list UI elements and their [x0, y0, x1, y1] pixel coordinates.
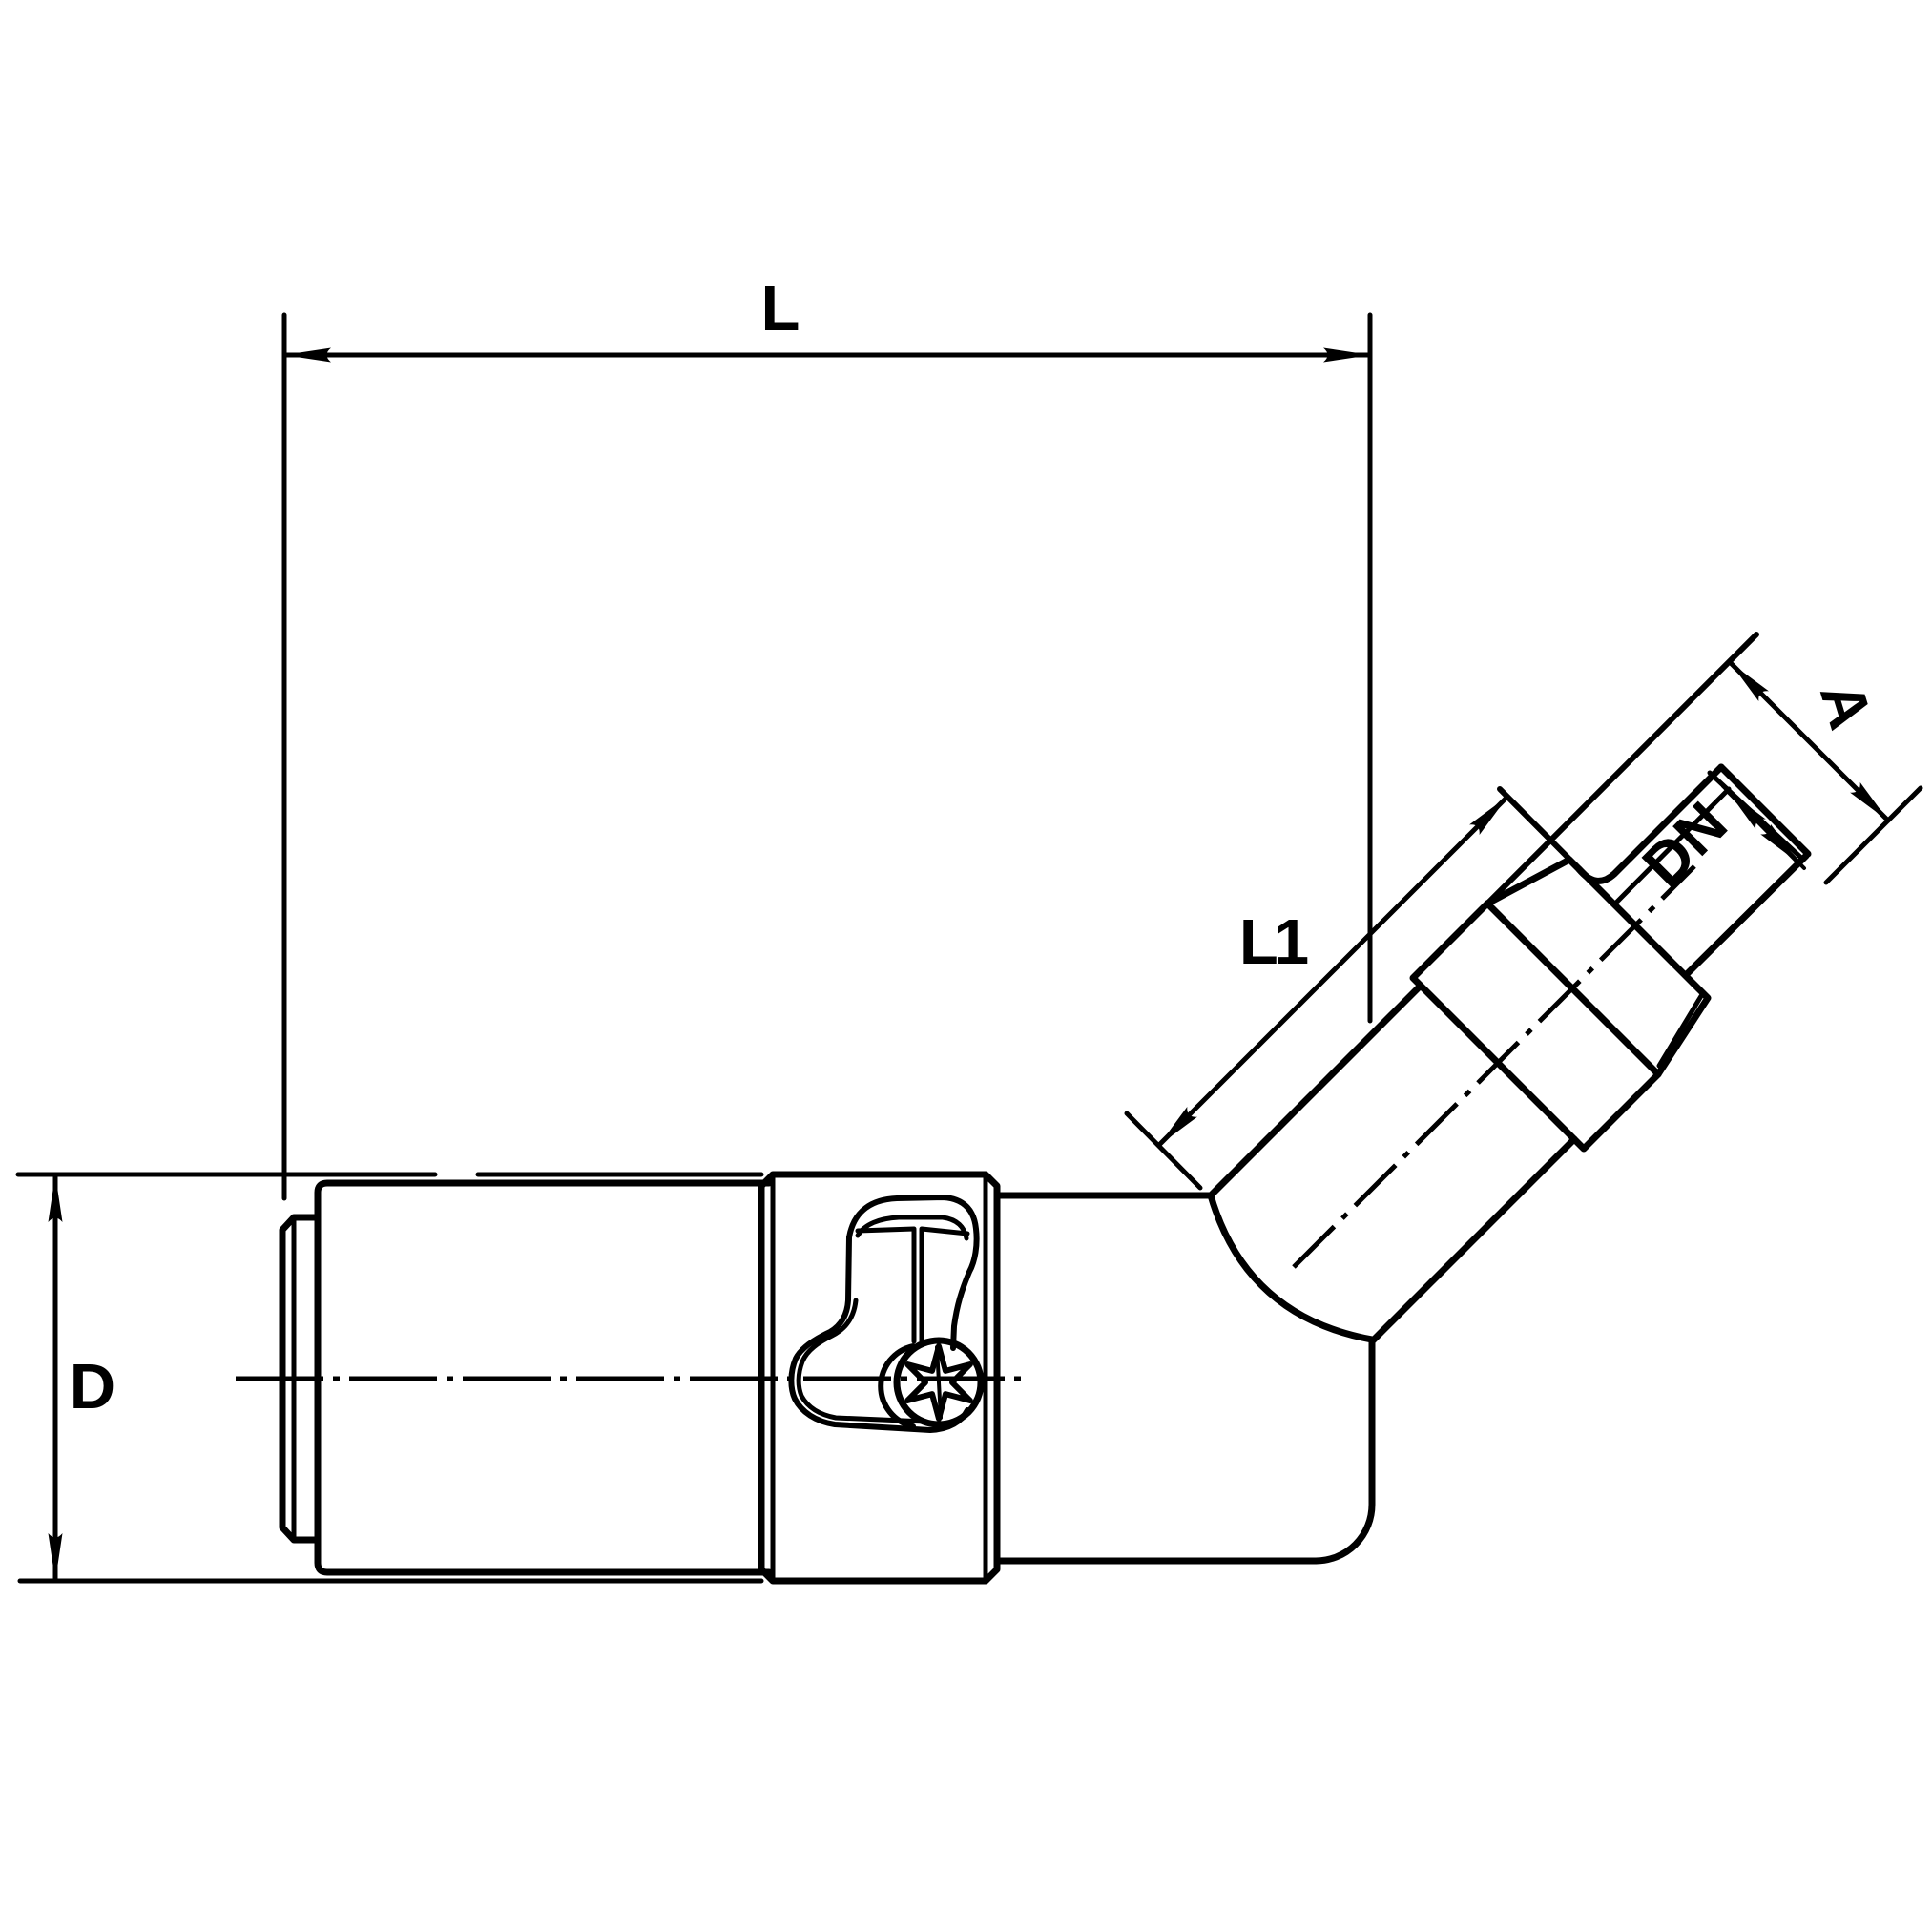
svg-text:L: L: [761, 273, 800, 344]
svg-text:D: D: [70, 1351, 115, 1423]
svg-text:L1: L1: [1239, 906, 1308, 978]
